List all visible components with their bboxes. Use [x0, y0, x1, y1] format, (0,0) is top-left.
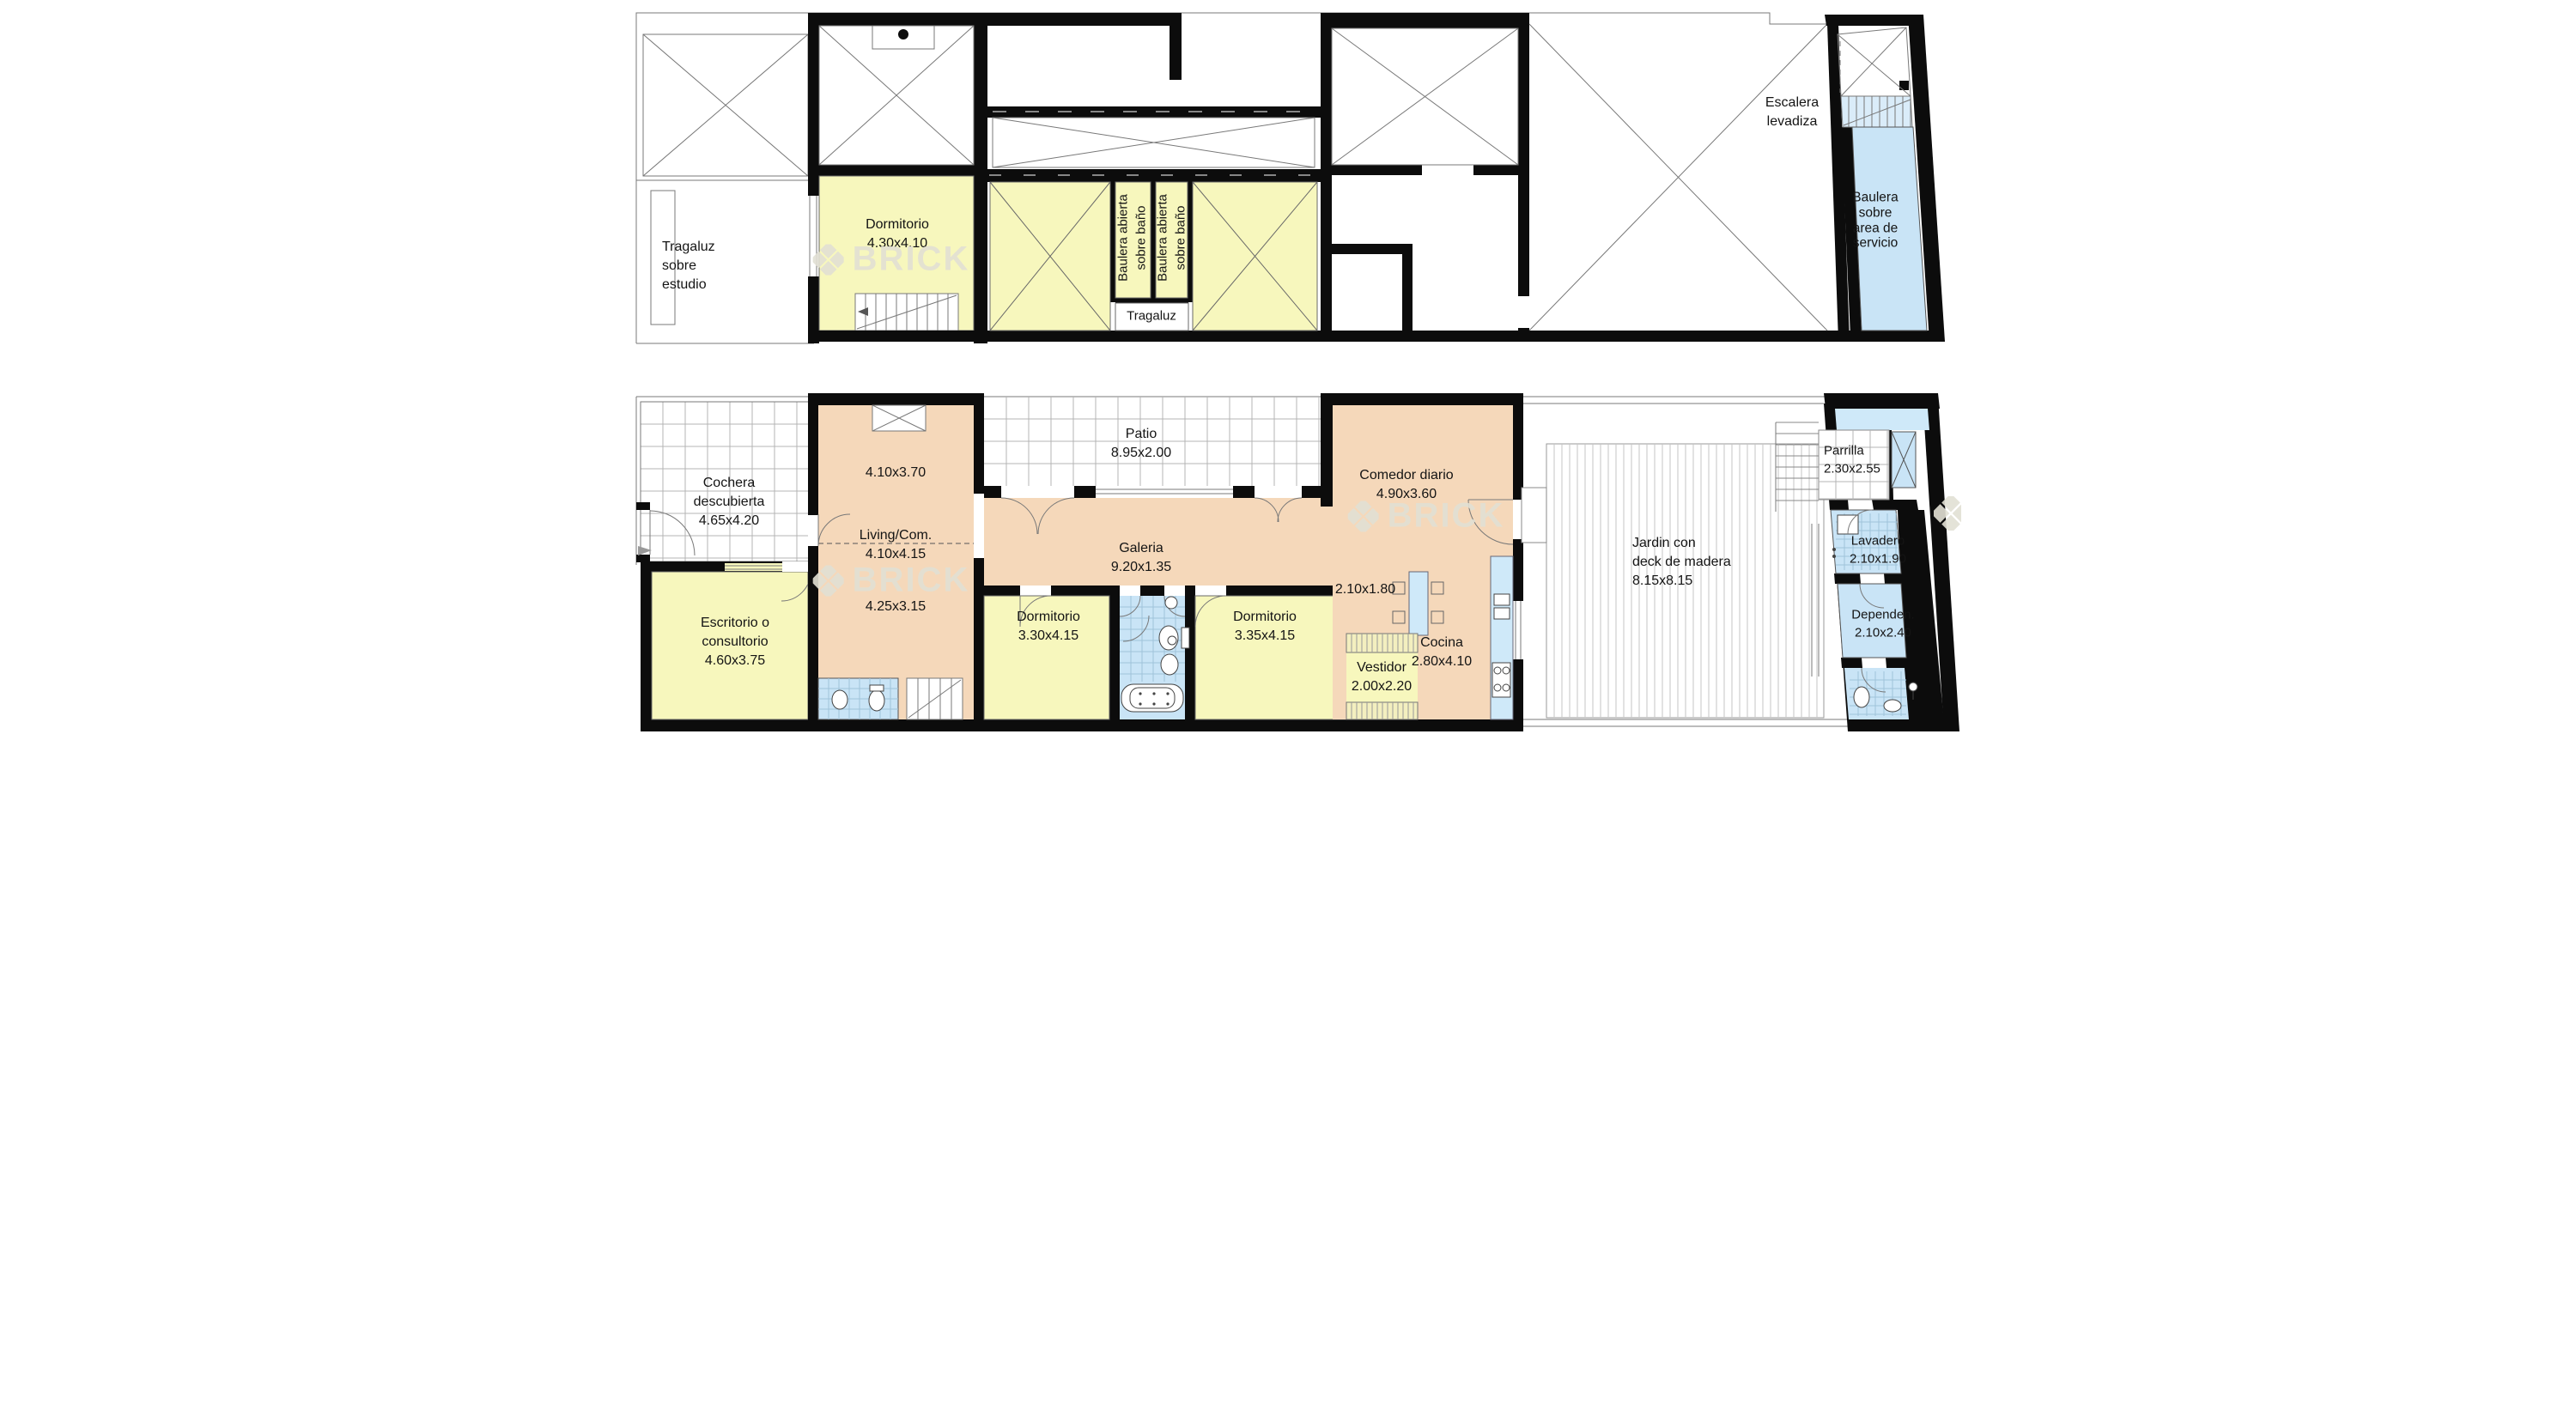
sink-icon — [1165, 597, 1177, 609]
room-label-vestidor: Vestidor 2.00x2.20 — [1352, 658, 1412, 696]
sink-icon — [832, 690, 848, 709]
brand-watermark: BRICK — [813, 561, 970, 600]
kitchen-counter — [1491, 556, 1513, 719]
room-label-dormitorio-2: Dormitorio 3.35x4.15 — [1233, 608, 1297, 646]
brand-watermark: BRICK — [1348, 497, 1505, 536]
toilet-icon — [1159, 626, 1189, 650]
living-niche — [872, 405, 926, 431]
room-label-lavadero: Lavadero 2.10x1.90 — [1850, 532, 1906, 567]
roof-open-area — [643, 34, 808, 176]
upper-right-room-open — [1332, 28, 1518, 165]
stove-icon — [1492, 663, 1510, 697]
brick-diamond-logo — [813, 565, 844, 596]
upper-terrace-x — [1529, 24, 1827, 331]
room-label-baulera-1: Baulera abierta sobre baño — [1115, 194, 1150, 282]
room-label-dormitorio-1: Dormitorio 3.30x4.15 — [1017, 608, 1080, 646]
floor-plan-document: Tragaluz sobre estudio Dormitorio 4.30x4… — [615, 0, 1961, 745]
room-label-patio: Patio 8.95x2.00 — [1111, 425, 1171, 463]
room-label-baulera-servicio: Baulera sobre area de servicio — [1852, 190, 1898, 251]
brick-diamond-logo — [1934, 496, 1961, 531]
roof-strip-open — [993, 118, 1315, 167]
room-label-sala-425: 4.25x3.15 — [866, 598, 926, 616]
brand-watermark-partial — [1934, 496, 1961, 531]
brick-diamond-logo — [1348, 501, 1379, 531]
brand-watermark: BRICK — [813, 240, 970, 279]
entrance-gate — [636, 502, 695, 562]
toilet-icon — [869, 690, 884, 711]
upper-room-open — [819, 26, 974, 165]
room-label-tragaluz: Tragaluz — [1127, 308, 1176, 326]
kitchen-window — [1513, 601, 1523, 659]
room-label-cocina: Cocina 2.80x4.10 — [1412, 634, 1472, 671]
room-label-baulera-2: Baulera abierta sobre baño — [1154, 194, 1189, 282]
service-stairs-icon — [1841, 96, 1912, 127]
shower-icon — [1909, 683, 1917, 691]
upper-plan — [636, 13, 1945, 343]
room-label-living: Living/Com. 4.10x4.15 — [860, 526, 932, 564]
room-label-galeria: Galeria 9.20x1.35 — [1111, 539, 1171, 577]
service-terrace-band — [1835, 409, 1929, 430]
room-label-jardin: Jardin con deck de madera 8.15x8.15 — [1632, 534, 1731, 591]
closet-hatch — [1346, 634, 1418, 652]
baulera-open-left — [990, 182, 1110, 331]
sink-icon — [1884, 700, 1901, 712]
room-label-tragaluz-estudio: Tragaluz sobre estudio — [662, 238, 715, 294]
bathtub-icon — [1121, 684, 1183, 712]
vent-dot-icon — [898, 29, 908, 39]
brick-diamond-logo — [813, 244, 844, 275]
stairs-icon — [855, 294, 958, 331]
room-label-dependencia: Dependen. 2.10x2.40 — [1851, 606, 1914, 641]
room-label-sala-410: 4.10x3.70 — [866, 464, 926, 482]
room-label-escritorio: Escritorio o consultorio 4.60x3.75 — [701, 614, 769, 671]
room-label-nook: 2.10x1.80 — [1335, 580, 1395, 599]
service-shaft — [1892, 432, 1916, 488]
galeria-comedor-opening — [1321, 507, 1333, 586]
living-bath — [818, 678, 898, 719]
closet-hatch — [1346, 702, 1418, 719]
room-label-parrilla: Parrilla 2.30x2.55 — [1824, 442, 1880, 477]
patio-window — [1096, 486, 1233, 498]
main-bathroom — [1120, 596, 1189, 719]
baulera-open-right — [1193, 182, 1317, 331]
deck-step — [1522, 488, 1546, 543]
room-label-escalera: Escalera levadiza — [1765, 94, 1819, 131]
toilet-icon — [1854, 687, 1869, 707]
room-label-cochera: Cochera descubierta 4.65x4.20 — [694, 474, 765, 531]
living-stairs-icon — [907, 678, 963, 719]
bidet-icon — [1161, 654, 1178, 675]
escritorio-window — [725, 563, 792, 571]
